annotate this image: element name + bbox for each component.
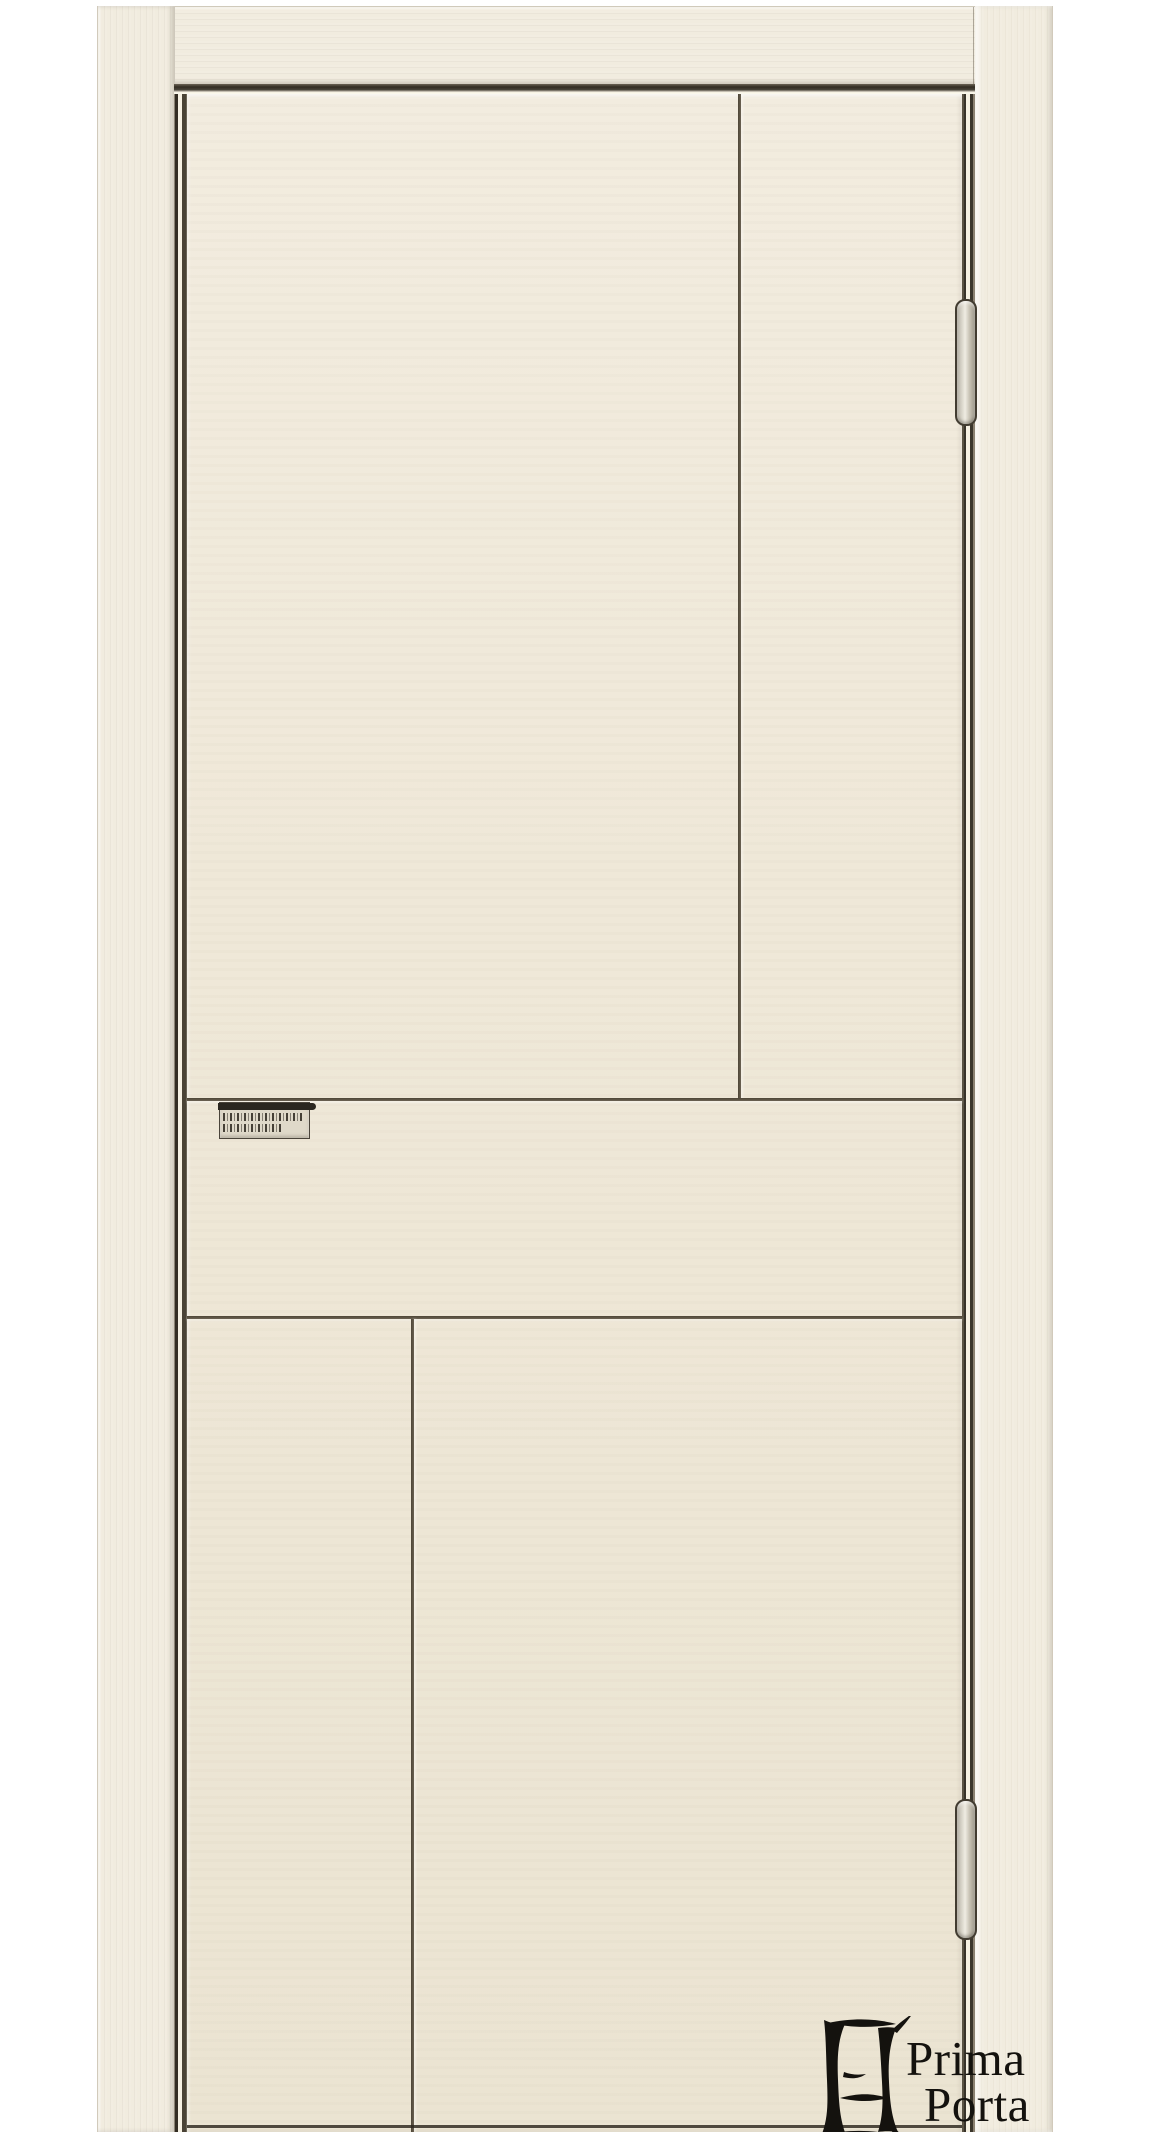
hinge-bottom xyxy=(955,1799,977,1940)
door-leaf xyxy=(187,94,962,2132)
groove-horizontal-upper xyxy=(187,1098,962,1101)
frame-gap-left xyxy=(174,94,187,2132)
door-frame-left-jamb xyxy=(97,6,175,2132)
frame-gap-top xyxy=(174,84,975,94)
lock-plate-engraving-row xyxy=(223,1113,303,1121)
lock-plate-top-bar xyxy=(218,1103,316,1110)
groove-horizontal-lower xyxy=(187,1316,962,1319)
door-product-photo: Prima Porta xyxy=(0,0,1152,2132)
door-logo-icon xyxy=(814,2016,914,2132)
brand-name-line2: Porta xyxy=(924,2080,1030,2129)
brand-name-line1: Prima xyxy=(906,2034,1026,2083)
door-frame-right-jamb xyxy=(975,6,1053,2132)
hinge-top xyxy=(955,299,977,426)
lock-plate-engraving-row xyxy=(223,1124,281,1132)
brand-logo: Prima Porta xyxy=(798,1988,1128,2132)
lock-plate xyxy=(219,1102,310,1139)
groove-vertical-upper xyxy=(738,94,741,1100)
door-frame-head-jamb xyxy=(97,6,1052,86)
groove-vertical-lower xyxy=(411,1319,414,2132)
